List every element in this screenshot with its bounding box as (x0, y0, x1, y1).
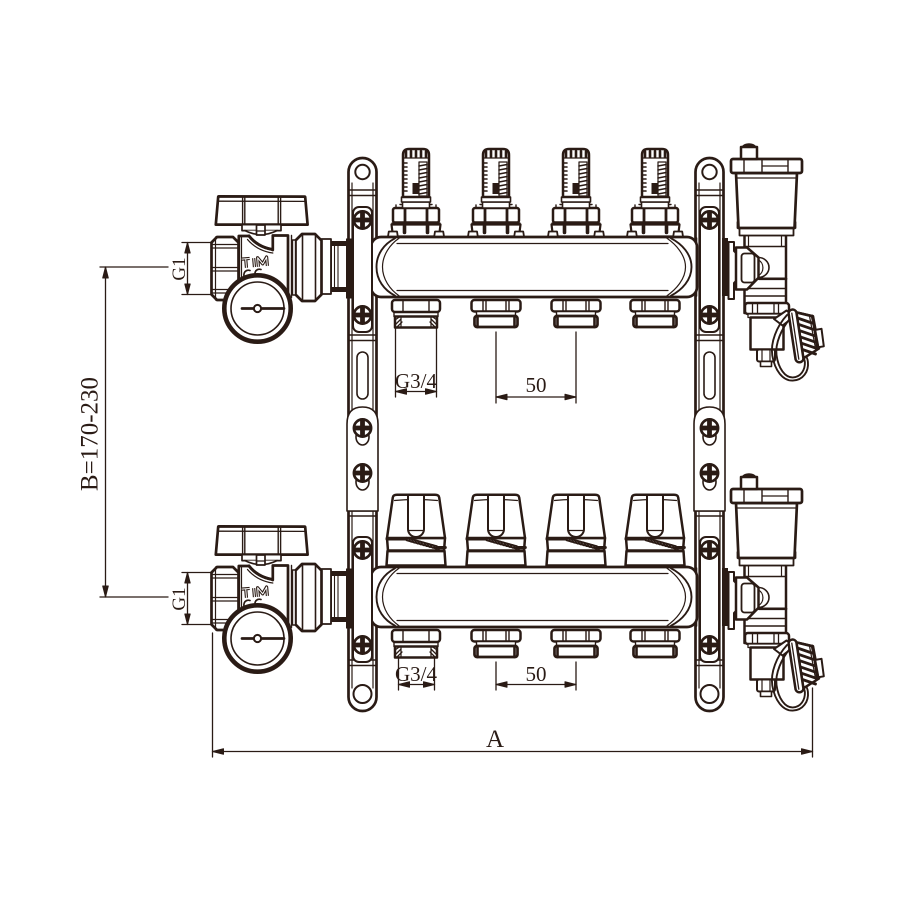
svg-text:A: A (486, 726, 504, 753)
svg-text:B=170-230: B=170-230 (77, 377, 104, 491)
svg-text:G3/4: G3/4 (395, 662, 438, 686)
svg-text:G1: G1 (169, 587, 190, 610)
svg-text:50: 50 (526, 662, 547, 686)
svg-text:G1: G1 (169, 257, 190, 280)
svg-text:G3/4: G3/4 (395, 369, 438, 393)
svg-text:50: 50 (526, 373, 547, 397)
